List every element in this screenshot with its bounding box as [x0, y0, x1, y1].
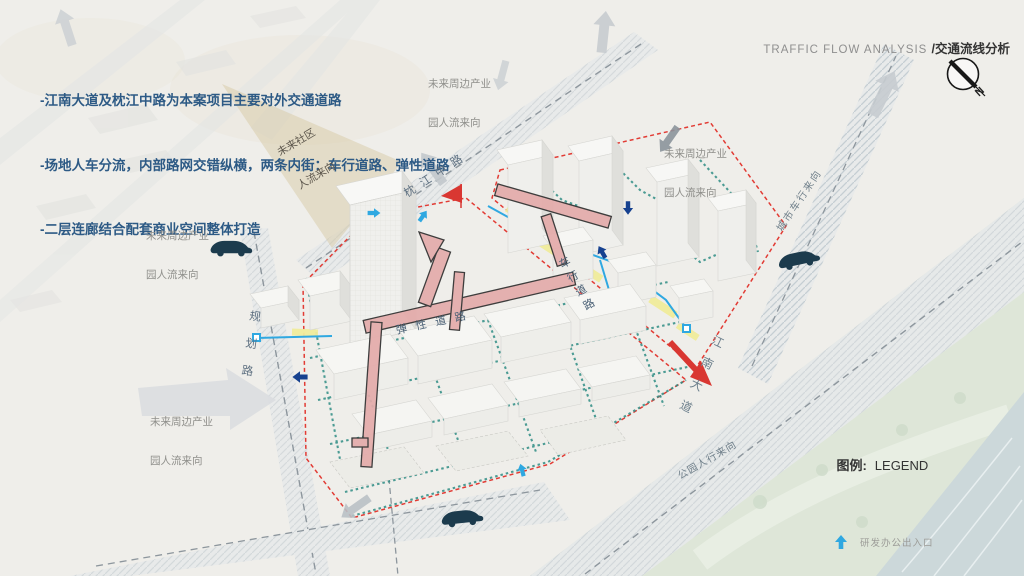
label-industry-flow-right: 未来周边产业 园人流来向: [664, 122, 727, 213]
page-title: TRAFFIC FLOW ANALYSIS /交通流线分析: [755, 20, 1011, 58]
page-title-zh: /交通流线分析: [932, 42, 1010, 56]
note-line-3: -二层连廊结合配套商业空间整体打造: [40, 219, 450, 241]
page-title-en: TRAFFIC FLOW ANALYSIS: [763, 44, 931, 56]
legend-title: 图例:LEGEND: [822, 440, 1017, 489]
note-line-2: -场地人车分流，内部路网交错纵横，两条内街：车行道路、弹性道路: [40, 155, 450, 177]
slide-traffic-flow-analysis: TRAFFIC FLOW ANALYSIS /交通流线分析 N -江南大道及枕江…: [0, 0, 1024, 576]
label-industry-flow-left: 未来周边产业 园人流来向: [146, 204, 209, 295]
legend-row: 研发办公出入口: [822, 531, 1017, 552]
label-industry-flow-top: 未来周边产业 园人流来向: [428, 52, 491, 143]
office-entrance-arrow-icon: [822, 534, 860, 550]
design-notes: -江南大道及枕江中路为本案项目主要对外交通道路 -场地人车分流，内部路网交错纵横…: [40, 47, 450, 262]
note-line-1: -江南大道及枕江中路为本案项目主要对外交通道路: [40, 90, 450, 112]
legend: 图例:LEGEND 研发办公出入口 地下车库出入口 市政道路流线 人行流线 内部…: [822, 404, 1017, 576]
label-industry-flow-bottom: 未来周边产业 园人流来向: [150, 390, 213, 481]
